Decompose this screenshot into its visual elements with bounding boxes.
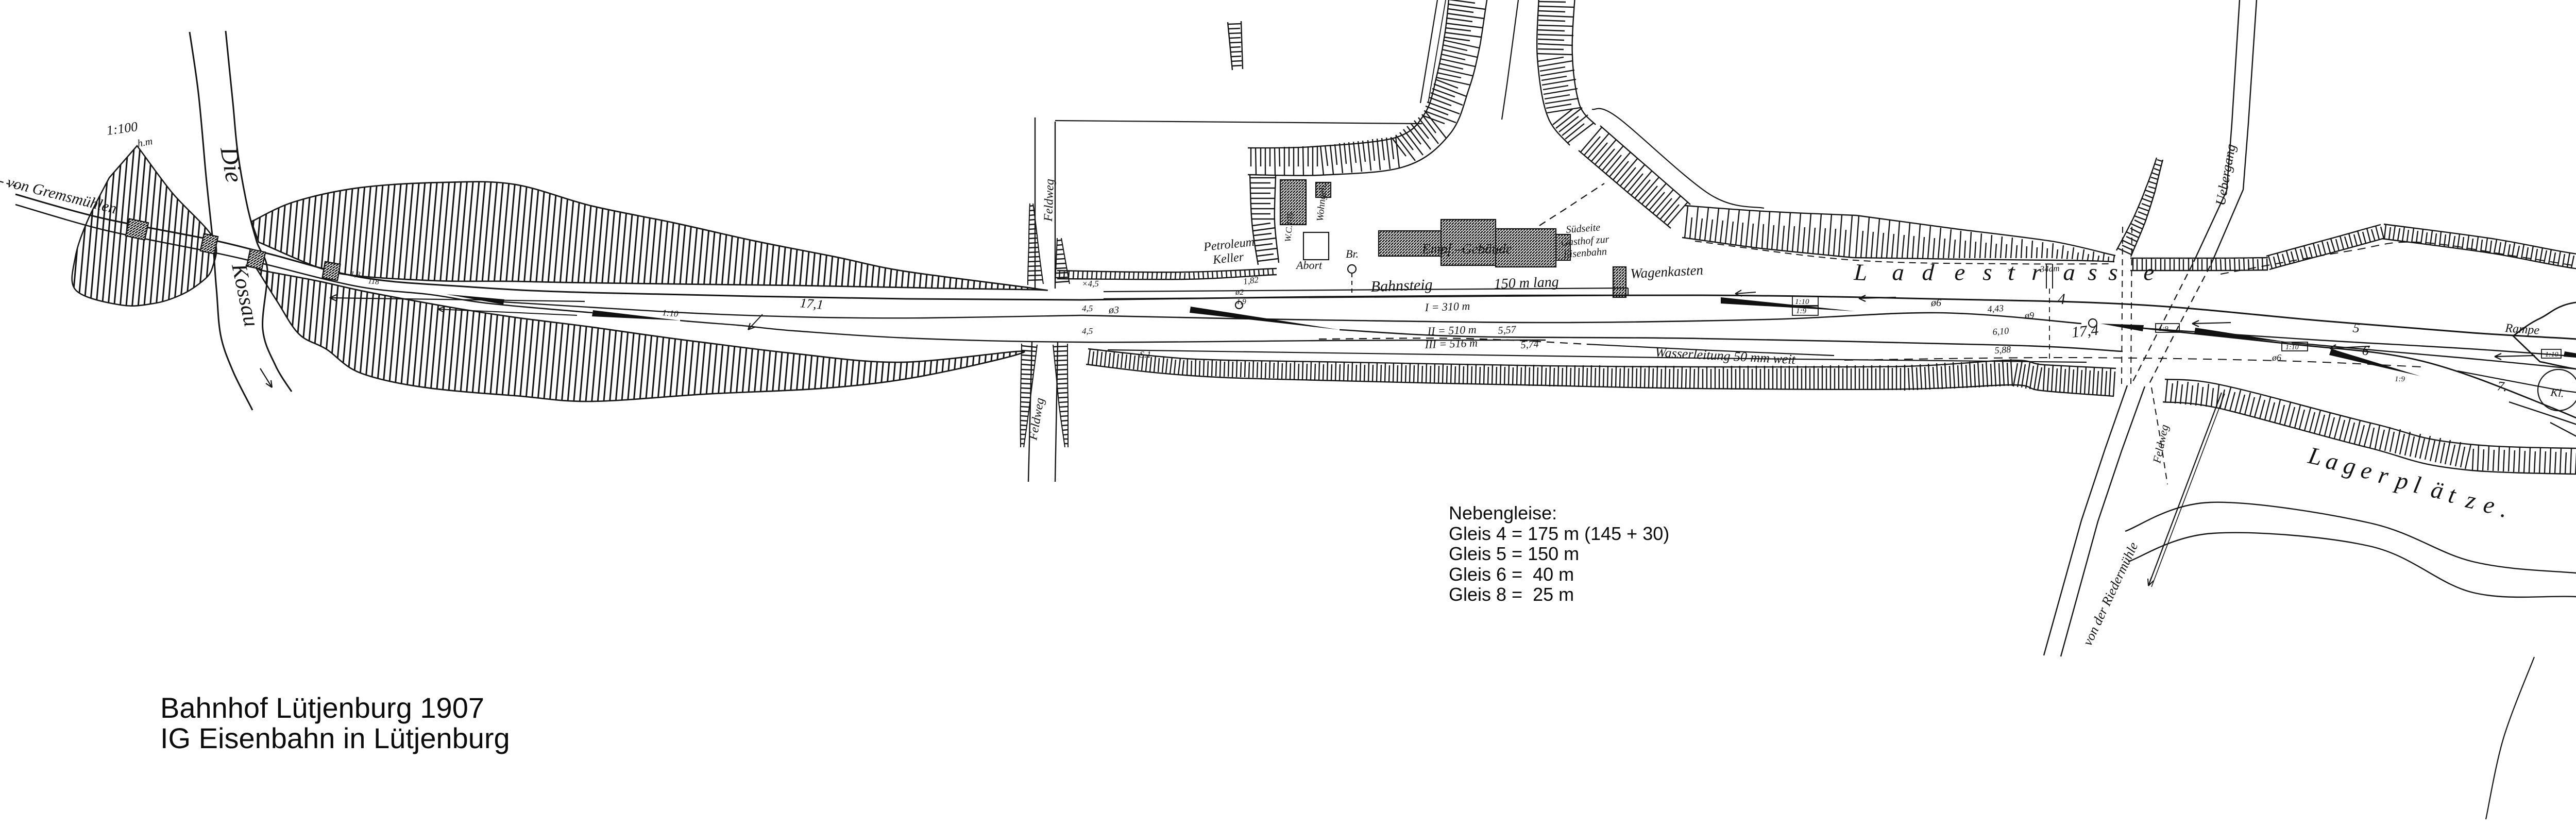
svg-text:IG Eisenbahn in Lütjenburg: IG Eisenbahn in Lütjenburg: [160, 722, 510, 754]
svg-text:ø2: ø2: [1235, 288, 1244, 297]
svg-text:5,74: 5,74: [1520, 339, 1539, 351]
svg-text:1:9: 1:9: [1796, 307, 1806, 315]
svg-text:Br.: Br.: [1346, 247, 1359, 260]
svg-text:ø9: ø9: [2024, 310, 2034, 320]
svg-text:1:10: 1:10: [2285, 344, 2299, 351]
svg-text:Bahnhof Lütjenburg 1907: Bahnhof Lütjenburg 1907: [160, 691, 484, 724]
svg-text:Südseite: Südseite: [1566, 222, 1601, 235]
svg-text:Feldweg: Feldweg: [1042, 179, 1057, 222]
svg-text:×4,5: ×4,5: [1082, 279, 1099, 289]
svg-text:s: s: [1982, 259, 1993, 285]
svg-text:III = 516 m: III = 516 m: [1424, 336, 1478, 351]
svg-text:I = 310 m: I = 310 m: [1424, 299, 1470, 314]
svg-text:a: a: [1891, 259, 1905, 285]
svg-text:ø6: ø6: [1930, 297, 1941, 309]
svg-text:4,5: 4,5: [1082, 303, 1093, 313]
svg-text:6,10: 6,10: [1992, 326, 2009, 337]
svg-text:118: 118: [368, 277, 380, 286]
svg-text:s: s: [2108, 259, 2119, 285]
svg-text:a: a: [2062, 259, 2076, 285]
svg-text:Kl.: Kl.: [2549, 385, 2565, 400]
svg-text:150 m lang: 150 m lang: [1494, 274, 1559, 292]
svg-text:Gleis 5 = 150 m: Gleis 5 = 150 m: [1449, 543, 1579, 564]
svg-text:d: d: [1921, 259, 1935, 285]
svg-text:1:10: 1:10: [1795, 298, 1809, 306]
svg-text:Gleis 4 = 175 m (145 + 30): Gleis 4 = 175 m (145 + 30): [1449, 523, 1669, 544]
svg-text:4,43: 4,43: [1987, 303, 2004, 314]
svg-text:S.1: S.1: [1140, 349, 1151, 360]
svg-text:L: L: [1853, 259, 1868, 285]
svg-text:e: e: [2143, 259, 2155, 285]
svg-text:Gleis 8 = 25 m: Gleis 8 = 25 m: [1449, 584, 1574, 605]
svg-text:Empf.–Gebäude: Empf.–Gebäude: [1421, 241, 1512, 257]
svg-text:5,57: 5,57: [1498, 324, 1517, 336]
svg-text:Gleis 6 = 40 m: Gleis 6 = 40 m: [1449, 564, 1574, 585]
svg-text:4: 4: [2058, 291, 2065, 308]
svg-text:1,8: 1,8: [350, 270, 361, 279]
svg-text:5,88: 5,88: [1994, 344, 2011, 356]
svg-text:Abort: Abort: [1295, 259, 1323, 272]
svg-text:Nebengleise:: Nebengleise:: [1449, 502, 1557, 524]
svg-text:ø3: ø3: [1108, 305, 1119, 316]
svg-text:Rampe: Rampe: [2504, 322, 2540, 337]
svg-text:1:10: 1:10: [662, 308, 679, 319]
svg-text:Bahnsteig: Bahnsteig: [1370, 276, 1433, 295]
svg-text:4,5: 4,5: [1082, 326, 1093, 336]
svg-text:e: e: [1954, 259, 1965, 285]
svg-text:17,4: 17,4: [2071, 322, 2099, 341]
svg-text:34am: 34am: [2039, 263, 2060, 274]
svg-text:II = 510 m: II = 510 m: [1427, 323, 1477, 337]
svg-text:17,1: 17,1: [799, 295, 824, 312]
svg-text:1:9: 1:9: [2395, 375, 2405, 383]
svg-text:1:10: 1:10: [2545, 351, 2558, 359]
svg-text:s: s: [2087, 259, 2098, 285]
